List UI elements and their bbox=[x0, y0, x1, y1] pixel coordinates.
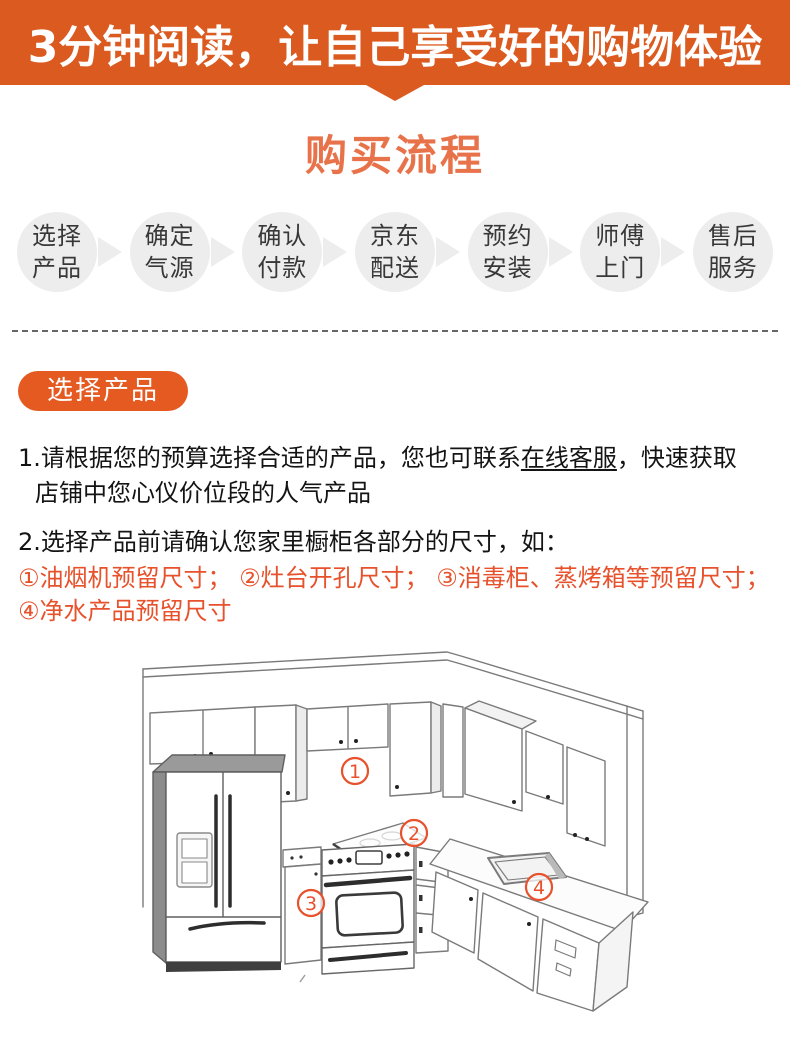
step-label: 确认 bbox=[257, 220, 307, 252]
step-label: 预约 bbox=[483, 220, 533, 252]
note-line-1: ①油烟机预留尺寸； ②灶台开孔尺寸； ③消毒柜、蒸烤箱等预留尺寸； bbox=[18, 562, 770, 595]
range-oven bbox=[322, 844, 414, 974]
step-bubble-6: 师傅 上门 bbox=[580, 212, 660, 292]
step-bubble-7: 售后 服务 bbox=[693, 212, 773, 292]
banner: 3分钟阅读，让自己享受好的购物体验 bbox=[0, 0, 790, 85]
step-bubble-1: 选择 产品 bbox=[17, 212, 97, 292]
marker-1-number: 1 bbox=[349, 761, 361, 783]
step-bubble-3: 确认 付款 bbox=[242, 212, 322, 292]
purchase-steps: 选择 产品 确定 气源 确认 付款 京东 配送 预约 安装 师傅 上门 bbox=[0, 212, 790, 292]
marker-4-number: 4 bbox=[533, 877, 545, 899]
arrow-right-icon bbox=[436, 237, 460, 267]
kitchen-diagram: 1 2 3 4 bbox=[0, 640, 790, 1037]
kitchen-drawing: 1 2 3 4 bbox=[0, 640, 790, 1037]
page: 3分钟阅读，让自己享受好的购物体验 购买流程 选择 产品 确定 气源 确认 付款… bbox=[0, 0, 790, 1037]
marker-2-icon: 2 bbox=[401, 820, 427, 846]
arrow-right-icon bbox=[98, 237, 122, 267]
step-label: 气源 bbox=[145, 252, 195, 284]
paragraph-1-text: 1.请根据您的预算选择合适的产品，您也可联系 bbox=[18, 444, 521, 472]
step-label: 上门 bbox=[595, 252, 645, 284]
step-label: 安装 bbox=[483, 252, 533, 284]
marker-3-number: 3 bbox=[305, 893, 317, 915]
page-title: 购买流程 bbox=[0, 131, 790, 181]
paragraph-1-line-1: 1.请根据您的预算选择合适的产品，您也可联系在线客服，快速获取 bbox=[18, 441, 770, 476]
marker-1-icon: 1 bbox=[342, 758, 368, 784]
note-line-2: ④净水产品预留尺寸 bbox=[18, 595, 770, 628]
step-label: 配送 bbox=[370, 252, 420, 284]
arrow-right-icon bbox=[661, 237, 685, 267]
step-bubble-4: 京东 配送 bbox=[355, 212, 435, 292]
dimension-notes: ①油烟机预留尺寸； ②灶台开孔尺寸； ③消毒柜、蒸烤箱等预留尺寸； ④净水产品预… bbox=[18, 562, 770, 628]
step-label: 选择 bbox=[32, 220, 82, 252]
marker-3-icon: 3 bbox=[298, 890, 324, 916]
step-label: 确定 bbox=[145, 220, 195, 252]
step-label: 付款 bbox=[257, 252, 307, 284]
marker-4-icon: 4 bbox=[526, 874, 552, 900]
banner-tail-row bbox=[0, 85, 790, 101]
arrow-right-icon bbox=[211, 237, 235, 267]
paragraph-1-line-2: 店铺中您心仪价位段的人气产品 bbox=[18, 476, 770, 511]
arrow-right-icon bbox=[549, 237, 573, 267]
step-label: 服务 bbox=[708, 252, 758, 284]
section-badge: 选择产品 bbox=[18, 371, 188, 411]
step-label: 师傅 bbox=[595, 220, 645, 252]
banner-title: 3分钟阅读，让自己享受好的购物体验 bbox=[28, 11, 763, 75]
step-label: 京东 bbox=[370, 220, 420, 252]
step-label: 售后 bbox=[708, 220, 758, 252]
step-bubble-2: 确定 气源 bbox=[130, 212, 210, 292]
paragraph-1: 1.请根据您的预算选择合适的产品，您也可联系在线客服，快速获取 店铺中您心仪价位… bbox=[18, 441, 770, 511]
step-bubble-5: 预约 安装 bbox=[468, 212, 548, 292]
arrow-right-icon bbox=[323, 237, 347, 267]
marker-2-number: 2 bbox=[408, 823, 420, 845]
paragraph-2: 2.选择产品前请确认您家里橱柜各部分的尺寸，如： bbox=[18, 525, 770, 560]
paragraph-1-text: ，快速获取 bbox=[617, 444, 737, 472]
banner-arrow-down-icon bbox=[366, 85, 424, 101]
step-label: 产品 bbox=[32, 252, 82, 284]
online-service-link[interactable]: 在线客服 bbox=[521, 444, 617, 472]
